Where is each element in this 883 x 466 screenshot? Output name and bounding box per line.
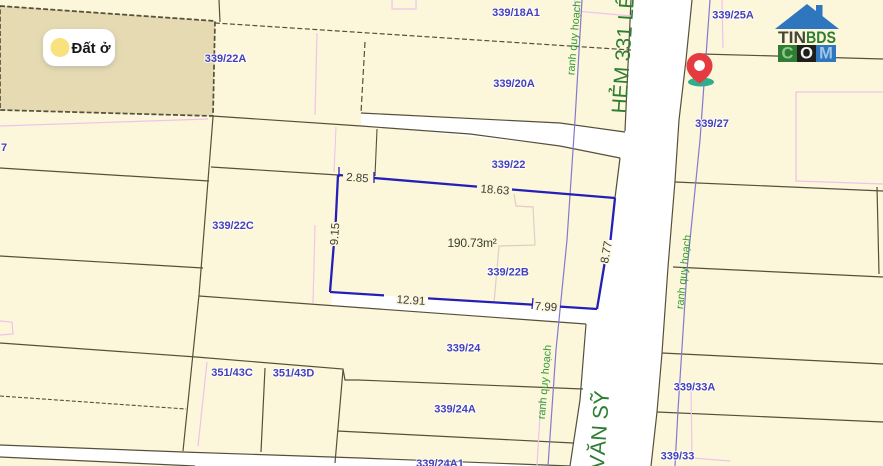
svg-text:339/22: 339/22: [492, 159, 526, 171]
svg-text:339/27: 339/27: [695, 118, 729, 130]
svg-text:339/33: 339/33: [661, 451, 695, 463]
svg-text:339/18A1: 339/18A1: [492, 7, 540, 19]
svg-text:339/22B: 339/22B: [487, 267, 529, 279]
svg-text:M: M: [819, 45, 833, 63]
svg-text:7.99: 7.99: [534, 301, 557, 314]
svg-text:339/25A: 339/25A: [712, 10, 754, 22]
svg-text:339/33A: 339/33A: [674, 382, 716, 394]
svg-text:O: O: [800, 45, 813, 63]
svg-text:Đất ở: Đất ở: [71, 40, 110, 57]
svg-text:351/43C: 351/43C: [211, 367, 253, 379]
svg-text:7: 7: [1, 142, 7, 154]
svg-text:339/24A: 339/24A: [434, 404, 476, 416]
svg-text:339/22A: 339/22A: [205, 53, 247, 65]
svg-text:339/22C: 339/22C: [212, 220, 254, 232]
svg-text:339/24A1: 339/24A1: [416, 458, 464, 466]
svg-text:339/24: 339/24: [447, 343, 482, 355]
svg-text:9.15: 9.15: [329, 223, 343, 246]
svg-text:C: C: [782, 45, 794, 63]
svg-text:351/43D: 351/43D: [273, 368, 315, 380]
svg-text:2.85: 2.85: [346, 172, 369, 186]
svg-text:339/20A: 339/20A: [493, 78, 535, 90]
svg-text:190.73m²: 190.73m²: [447, 236, 496, 250]
svg-text:12.91: 12.91: [396, 294, 425, 308]
svg-text:18.63: 18.63: [480, 183, 510, 197]
